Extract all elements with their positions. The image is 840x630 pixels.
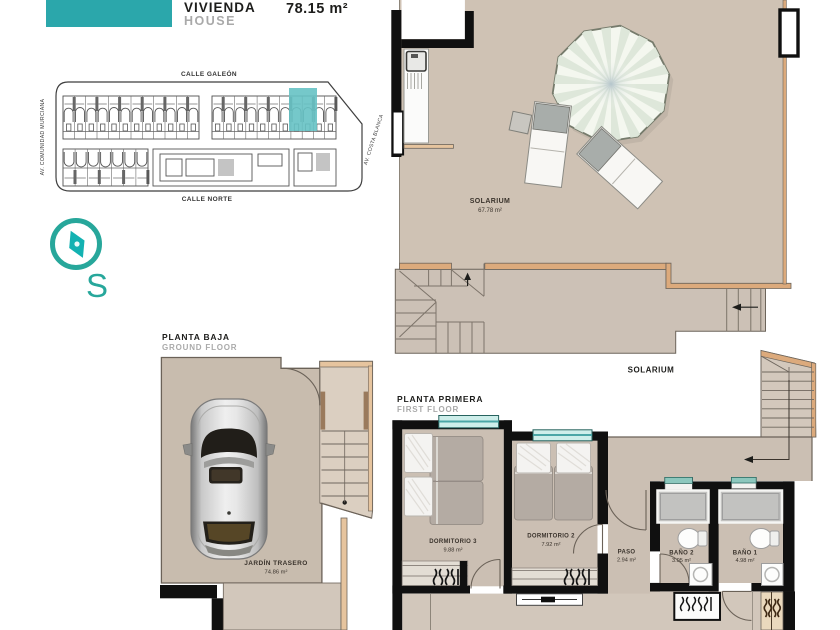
svg-text:FIRST FLOOR: FIRST FLOOR [397,405,459,414]
svg-text:PLANTA BAJA: PLANTA BAJA [162,332,230,342]
svg-text:GROUND FLOOR: GROUND FLOOR [162,343,237,352]
svg-text:DORMITORIO 3: DORMITORIO 3 [429,539,477,545]
svg-text:HOUSE: HOUSE [184,14,236,28]
svg-text:7.92 m²: 7.92 m² [542,542,561,548]
svg-text:3.05 m²: 3.05 m² [672,558,691,564]
svg-text:AV. COSTA BLANCA: AV. COSTA BLANCA [363,113,385,166]
svg-text:4.98 m²: 4.98 m² [736,558,755,564]
svg-text:PASO: PASO [618,550,636,556]
svg-text:74.86 m²: 74.86 m² [265,570,288,576]
svg-text:67.78 m²: 67.78 m² [478,208,502,214]
svg-text:PLANTA PRIMERA: PLANTA PRIMERA [397,394,483,404]
svg-text:2.94 m²: 2.94 m² [617,558,636,564]
svg-text:CALLE GALEÓN: CALLE GALEÓN [181,69,237,78]
svg-text:S: S [86,267,108,304]
svg-text:CALLE NORTE: CALLE NORTE [182,196,233,203]
svg-text:BAÑO 1: BAÑO 1 [733,550,758,557]
svg-text:78.15 m²: 78.15 m² [286,1,348,17]
svg-text:DORMITORIO 2: DORMITORIO 2 [527,534,575,540]
svg-text:SOLARIUM: SOLARIUM [628,366,675,375]
svg-text:VIVIENDA: VIVIENDA [184,0,256,15]
svg-text:JARDÍN TRASERO: JARDÍN TRASERO [244,558,307,567]
svg-text:9.88 m²: 9.88 m² [444,548,463,554]
svg-text:SOLARIUM: SOLARIUM [470,198,511,205]
svg-text:AV. COMUNIDAD MURCIANA: AV. COMUNIDAD MURCIANA [40,98,46,175]
svg-text:BAÑO 2: BAÑO 2 [669,550,694,557]
